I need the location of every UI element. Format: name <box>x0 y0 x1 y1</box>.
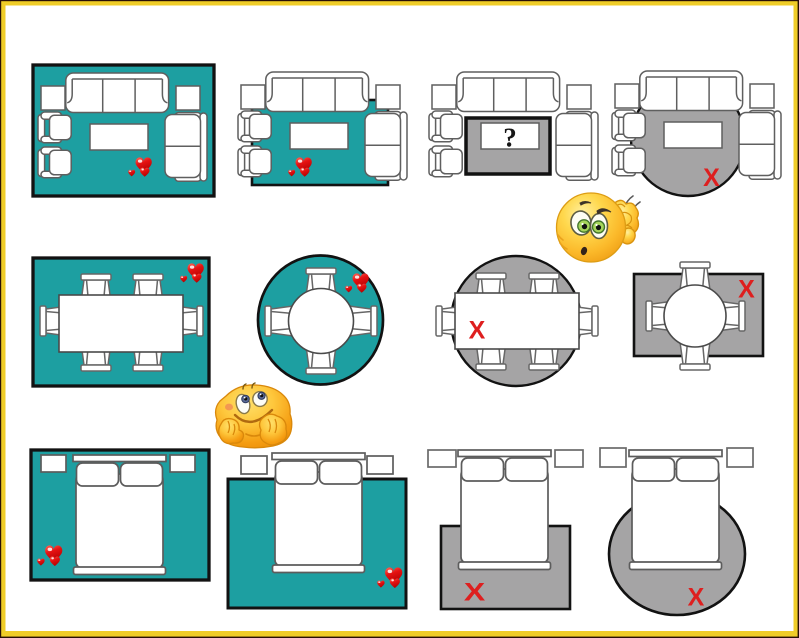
svg-text:X: X <box>688 584 705 612</box>
svg-text:X: X <box>469 317 486 345</box>
svg-text:X: X <box>464 579 485 607</box>
svg-text:X: X <box>738 276 755 304</box>
svg-text:?: ? <box>503 123 517 153</box>
svg-text:X: X <box>703 164 720 192</box>
